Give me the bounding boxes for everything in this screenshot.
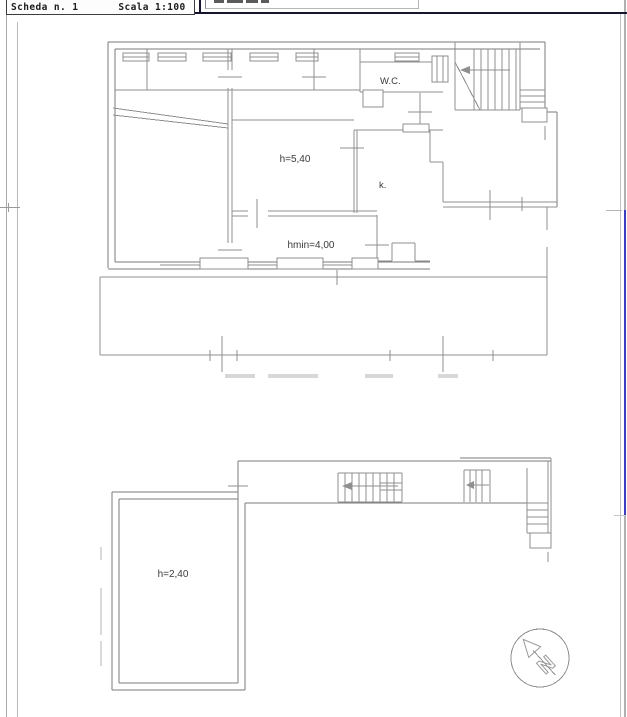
courtyard-boundary [100, 197, 547, 372]
title-box: Scheda n. 1 Scala 1:100 [6, 0, 195, 15]
clipped-text-remnant [246, 0, 258, 3]
stair1-arrowhead [342, 482, 352, 490]
header-divider [199, 0, 201, 12]
clipped-text-remnant [227, 0, 243, 3]
scheda-label: Scheda n. 1 [11, 2, 78, 13]
clipped-text-remnant [261, 0, 269, 3]
kitchen-label: k. [379, 180, 386, 191]
kitchen-window [403, 124, 429, 132]
floor-plan-svg: W.C. h=5,40 k. hmin=4,00 [0, 0, 627, 717]
wc-chimney [363, 90, 383, 107]
lower-height-label: h=2,40 [158, 569, 189, 580]
main-height-label: h=5,40 [280, 154, 311, 165]
scala-label: Scala 1:100 [118, 2, 185, 13]
upper-floor-plan: W.C. h=5,40 k. hmin=4,00 [100, 42, 557, 378]
frame-right-edge-bottom [624, 515, 626, 717]
centre-mark-left [0, 207, 20, 208]
faded-text-remnants [225, 374, 458, 378]
north-arrowhead [517, 634, 540, 657]
wc-side-window [432, 56, 448, 82]
plan-sheet: W.C. h=5,40 k. hmin=4,00 [0, 0, 627, 717]
centre-mark-right-low [614, 515, 626, 516]
wc-label: W.C. [380, 76, 401, 87]
upper-top-windows [123, 53, 419, 61]
frame-right-edge-top [624, 0, 626, 210]
hmin-label: hmin=4,00 [288, 240, 335, 251]
frame-right-inner [620, 14, 621, 717]
hmin-wall [232, 211, 377, 216]
north-compass: N [511, 629, 569, 687]
lower-right-stairs [527, 458, 551, 562]
frame-left-inner [17, 22, 18, 717]
upper-staircase [443, 42, 557, 207]
lower-staircase-1 [338, 473, 402, 502]
north-letter: N [533, 651, 560, 678]
frame-left-outer [6, 0, 7, 717]
lower-staircase-2 [464, 470, 490, 502]
centre-mark-right [606, 210, 622, 211]
kitchen-walls [352, 130, 443, 261]
upper-outer-walls [108, 42, 557, 268]
lower-floor-plan: h=2,40 [101, 458, 551, 690]
clipped-header-box [205, 0, 419, 9]
centre-mark-left-tick [8, 203, 9, 212]
diagonal-walls [113, 108, 228, 128]
frame-right-edge-blue [624, 210, 626, 515]
upper-bottom-wall [108, 258, 430, 269]
header-rule [195, 12, 627, 14]
clipped-text-remnant [214, 0, 224, 3]
stair-arrowhead [460, 66, 470, 74]
